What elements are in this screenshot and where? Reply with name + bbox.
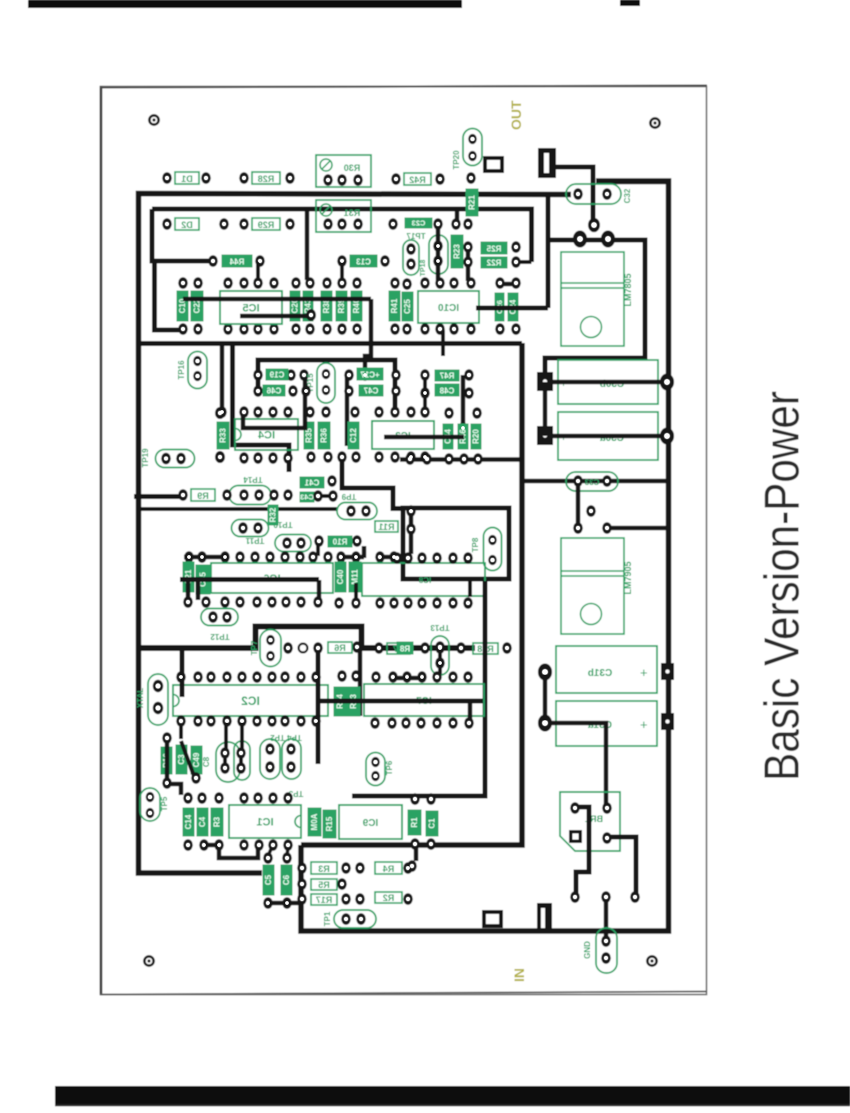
svg-text:TP12: TP12 (210, 632, 230, 641)
svg-text:IC8: IC8 (418, 576, 431, 585)
svg-text:TP9: TP9 (341, 492, 356, 501)
svg-text:TP19: TP19 (141, 448, 150, 468)
svg-text:R9: R9 (197, 491, 209, 501)
svg-text:IC2: IC2 (241, 694, 260, 708)
svg-text:TP18: TP18 (420, 260, 427, 277)
svg-text:Basic Version-Power: Basic Version-Power (756, 391, 810, 781)
svg-text:C47: C47 (363, 386, 378, 395)
svg-text:R6: R6 (334, 643, 346, 653)
svg-text:C4: C4 (198, 816, 207, 827)
svg-text:C46: C46 (266, 386, 281, 395)
svg-text:TP11: TP11 (245, 536, 264, 545)
svg-text:C5: C5 (264, 874, 273, 885)
svg-text:TP20: TP20 (452, 150, 461, 170)
svg-text:+: + (640, 665, 648, 680)
svg-text:R41: R41 (390, 298, 399, 313)
svg-text:TP7: TP7 (250, 640, 259, 655)
svg-text:TP6: TP6 (385, 760, 394, 775)
svg-text:+C17: +C17 (360, 370, 380, 379)
svg-text:TP8: TP8 (471, 537, 480, 552)
svg-text:R25: R25 (486, 244, 501, 253)
svg-text:IN: IN (511, 968, 527, 982)
svg-text:IC4: IC4 (257, 430, 275, 442)
svg-text:C14: C14 (184, 814, 193, 829)
svg-text:R30: R30 (344, 163, 361, 173)
svg-text:C1: C1 (428, 818, 437, 829)
svg-text:R8: R8 (399, 644, 410, 653)
svg-text:M0A: M0A (310, 813, 319, 830)
svg-text:LM7805: LM7805 (623, 273, 633, 306)
svg-text:R17: R17 (316, 895, 333, 905)
svg-text:C23: C23 (412, 218, 426, 227)
svg-text:IC1: IC1 (256, 817, 273, 829)
svg-text:R15: R15 (325, 816, 334, 831)
svg-text:XTAL: XTAL (136, 688, 145, 708)
svg-text:R22: R22 (486, 258, 501, 267)
svg-text:C25: C25 (403, 299, 412, 314)
svg-text:R28: R28 (258, 174, 275, 184)
svg-text:IC5: IC5 (242, 303, 259, 315)
svg-text:C41: C41 (304, 478, 319, 487)
svg-text:+: + (640, 717, 648, 732)
svg-text:TP14: TP14 (243, 475, 263, 484)
svg-text:R1: R1 (410, 817, 419, 828)
svg-text:R3: R3 (318, 864, 330, 874)
svg-text:R2: R2 (383, 893, 395, 903)
svg-text:TP13: TP13 (430, 623, 450, 632)
svg-text:C40: C40 (336, 569, 345, 584)
svg-text:R3: R3 (213, 816, 222, 827)
svg-text:TP16: TP16 (177, 360, 186, 380)
svg-text:IC10: IC10 (438, 303, 460, 314)
svg-text:IC9: IC9 (362, 818, 378, 829)
svg-text:C31b: C31b (588, 668, 612, 679)
svg-text:C12: C12 (349, 428, 358, 443)
svg-text:R42: R42 (409, 175, 426, 185)
svg-text:R20: R20 (472, 429, 481, 444)
svg-text:C33: C33 (584, 478, 599, 487)
svg-text:GND: GND (583, 941, 592, 959)
svg-text:TP1: TP1 (323, 911, 332, 926)
svg-text:R23: R23 (453, 244, 462, 259)
svg-text:R33: R33 (219, 428, 228, 443)
svg-text:R10: R10 (332, 537, 347, 546)
svg-text:R21: R21 (468, 195, 477, 210)
svg-text:C32: C32 (623, 188, 632, 203)
svg-text:D2: D2 (181, 220, 193, 230)
svg-text:C13: C13 (356, 257, 371, 266)
svg-text:TP5: TP5 (160, 796, 169, 811)
svg-text:C8: C8 (202, 756, 211, 767)
svg-text:R4: R4 (383, 864, 395, 874)
svg-text:D1: D1 (181, 174, 193, 184)
svg-text:LM7905: LM7905 (623, 561, 633, 594)
svg-text:R29: R29 (258, 220, 275, 230)
svg-text:C6: C6 (282, 874, 291, 885)
svg-text:R47: R47 (439, 371, 454, 380)
svg-text:R32: R32 (269, 507, 278, 522)
svg-text:C48: C48 (439, 386, 454, 395)
svg-text:C49: C49 (192, 752, 201, 767)
svg-text:R5: R5 (318, 880, 330, 890)
svg-text:R31: R31 (344, 208, 361, 218)
svg-text:M11: M11 (351, 569, 360, 585)
svg-text:C43: C43 (300, 492, 314, 501)
svg-text:OUT: OUT (508, 100, 524, 130)
svg-text:R44: R44 (229, 257, 244, 266)
svg-text:R36: R36 (320, 428, 329, 443)
svg-text:R11: R11 (378, 522, 394, 532)
svg-text:C19: C19 (269, 370, 284, 379)
